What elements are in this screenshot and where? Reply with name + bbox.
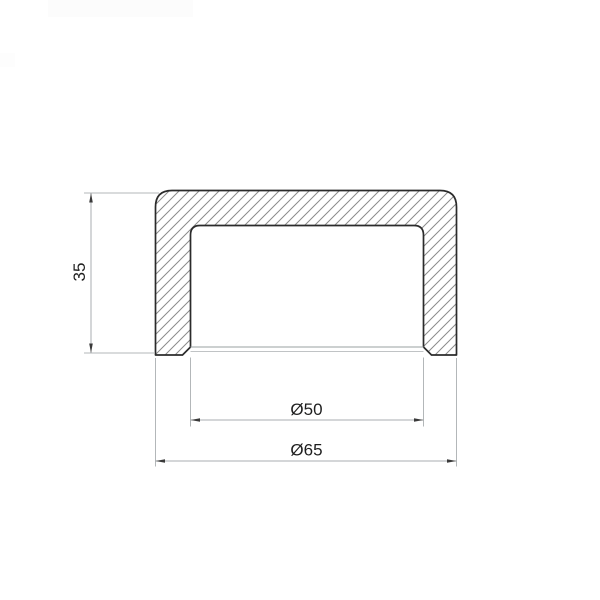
arrowhead-d65-left xyxy=(156,459,166,463)
cap-section-drawing: 35 Ø50 Ø65 xyxy=(0,0,600,600)
dimension-label-height: 35 xyxy=(70,263,89,282)
arrowhead-d50-right xyxy=(414,418,424,422)
arrowhead-35-up xyxy=(89,193,93,203)
dimension-label-inner-diameter: Ø50 xyxy=(290,400,322,419)
arrowhead-d65-right xyxy=(447,459,457,463)
arrowhead-35-down xyxy=(89,344,93,354)
arrowhead-d50-left xyxy=(191,418,201,422)
cap-section-body xyxy=(156,191,457,356)
drawing-canvas: 35 Ø50 Ø65 xyxy=(0,0,600,600)
dimension-label-outer-diameter: Ø65 xyxy=(290,441,322,460)
